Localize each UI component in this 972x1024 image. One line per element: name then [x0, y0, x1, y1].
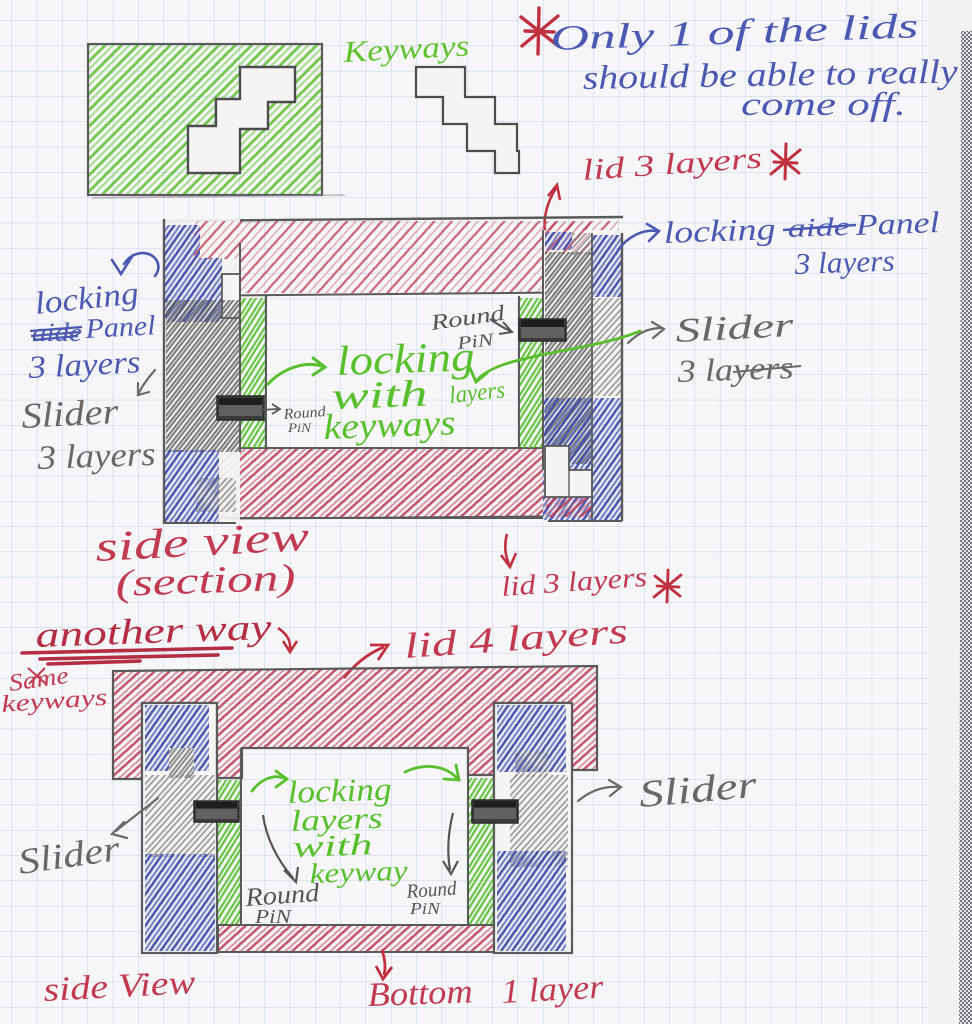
svg-text:3 layers: 3 layers [36, 436, 156, 477]
svg-text:Keyways: Keyways [341, 29, 470, 69]
svg-text:3 layers: 3 layers [26, 343, 141, 385]
svg-text:Panel: Panel [84, 310, 157, 345]
svg-text:another way: another way [35, 607, 272, 655]
svg-text:3 layers: 3 layers [793, 245, 895, 282]
svg-text:locking: locking [663, 211, 776, 250]
svg-text:PiN: PiN [254, 906, 293, 928]
svg-text:PiN: PiN [455, 329, 495, 353]
svg-text:Bottom: Bottom [367, 973, 473, 1014]
svg-text:1 layer: 1 layer [500, 969, 605, 1011]
svg-text:PiN: PiN [287, 420, 313, 435]
svg-text:come off.: come off. [741, 87, 906, 123]
svg-text:Slider: Slider [20, 391, 120, 436]
svg-text:PiN: PiN [409, 899, 442, 918]
svg-text:keyways: keyways [323, 402, 456, 447]
svg-text:(section): (section) [115, 557, 296, 605]
svg-text:Panel: Panel [854, 206, 940, 242]
svg-text:Slider: Slider [674, 307, 795, 350]
svg-text:keyway: keyway [309, 856, 409, 890]
